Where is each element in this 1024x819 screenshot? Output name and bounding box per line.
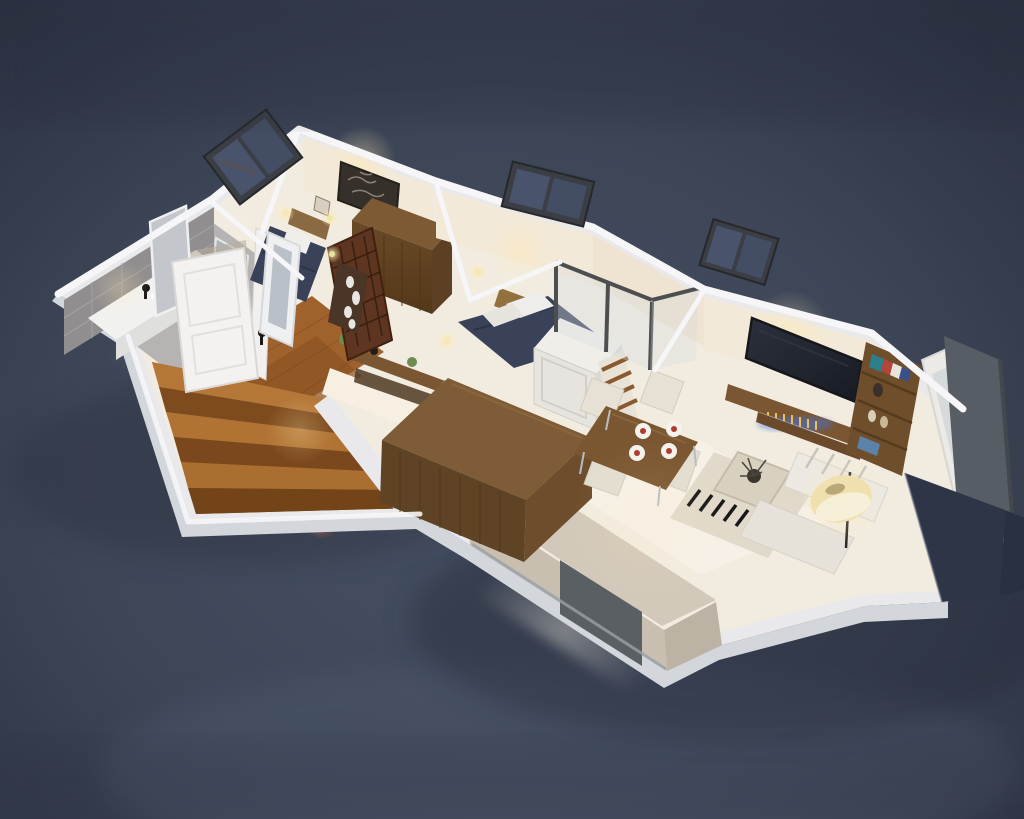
wall-lamp-yellow-2 [329, 251, 335, 257]
bedside-lamp [283, 210, 290, 217]
jar-1 [868, 410, 876, 422]
vase [873, 383, 883, 397]
wall-lamp-yellow-1 [327, 215, 333, 221]
hall-sconce-stem [260, 335, 263, 345]
jar-2 [880, 416, 888, 428]
lamp1 [474, 268, 482, 276]
glass-pane-2 [650, 290, 698, 370]
apartment-3d-floorplan [0, 0, 1024, 819]
wall-glow [490, 222, 550, 282]
lamp2 [443, 337, 451, 345]
render-canvas [0, 0, 1024, 819]
